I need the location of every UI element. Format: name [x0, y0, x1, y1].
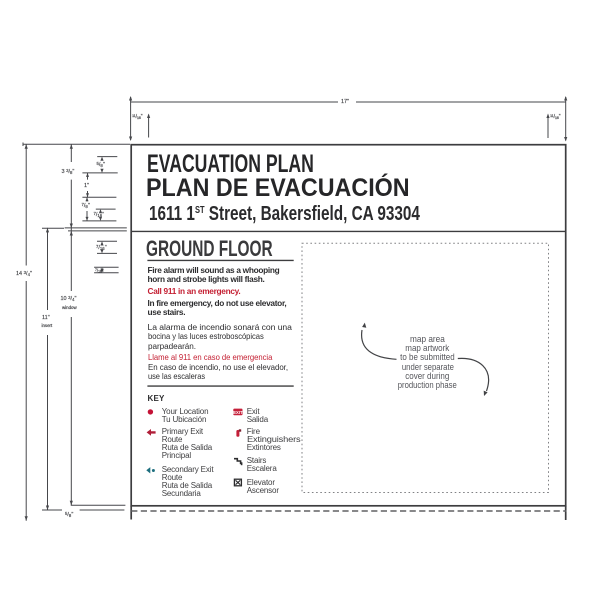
svg-text:EXIT: EXIT [233, 410, 243, 415]
